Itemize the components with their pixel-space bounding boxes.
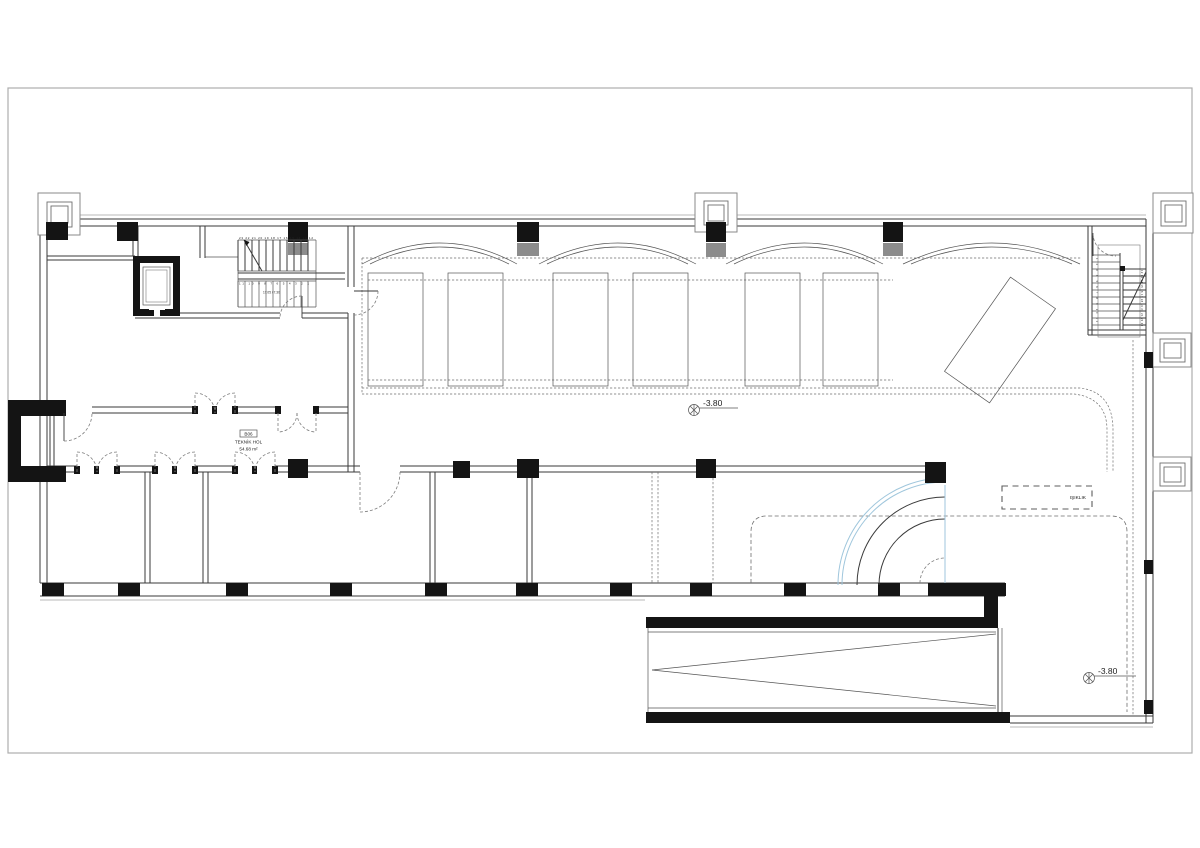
ramp-wall-connector: [984, 596, 998, 618]
axis-marker-right-upper: [1153, 333, 1191, 367]
skylight-label: IŞIKLIK: [1070, 495, 1087, 501]
room-area: 54.68 m²: [239, 447, 258, 452]
page-border: [8, 88, 1192, 753]
column: [517, 459, 539, 478]
level-text: -3.80: [703, 398, 723, 408]
column: [883, 222, 903, 242]
column-pad: [883, 243, 903, 256]
column-pad: [706, 243, 726, 257]
column: [46, 222, 68, 240]
column: [117, 222, 138, 241]
column: [925, 462, 946, 483]
elevator: [133, 256, 180, 316]
ramp-wall-north: [646, 617, 998, 628]
stair-ne-numbers-b: 12 13 14 15 16 17 18 19 20 21 22 23: [1140, 270, 1143, 327]
axis-marker-right-lower: [1153, 457, 1191, 491]
stair-newel: [1120, 266, 1125, 271]
column-pad: [288, 243, 308, 255]
column: [706, 222, 726, 242]
stair-note: 17.05 / 7.30: [263, 291, 280, 295]
column-pad: [517, 243, 539, 256]
stair-step-numbers-lower: 11 10 9 8 7 6 5 4 3 2 1: [239, 282, 309, 286]
room-name: TEKNİK HOL: [235, 439, 263, 445]
column: [288, 459, 308, 478]
column: [517, 222, 539, 242]
stair-step-numbers-upper: 23 22 21 20 19 18 17 16 15 14 13 12: [239, 236, 313, 240]
ramp-wall-south: [646, 712, 1010, 723]
column: [453, 461, 470, 478]
level-text: -3.80: [1098, 666, 1118, 676]
floor-plan-page: 23 22 21 20 19 18 17 16 15 14 13 12 11 1…: [0, 0, 1200, 848]
column: [696, 459, 716, 478]
room-code: B06: [244, 432, 253, 437]
floor-plan-drawing: 23 22 21 20 19 18 17 16 15 14 13 12 11 1…: [0, 0, 1200, 848]
axis-marker-top-right: [1153, 193, 1193, 233]
